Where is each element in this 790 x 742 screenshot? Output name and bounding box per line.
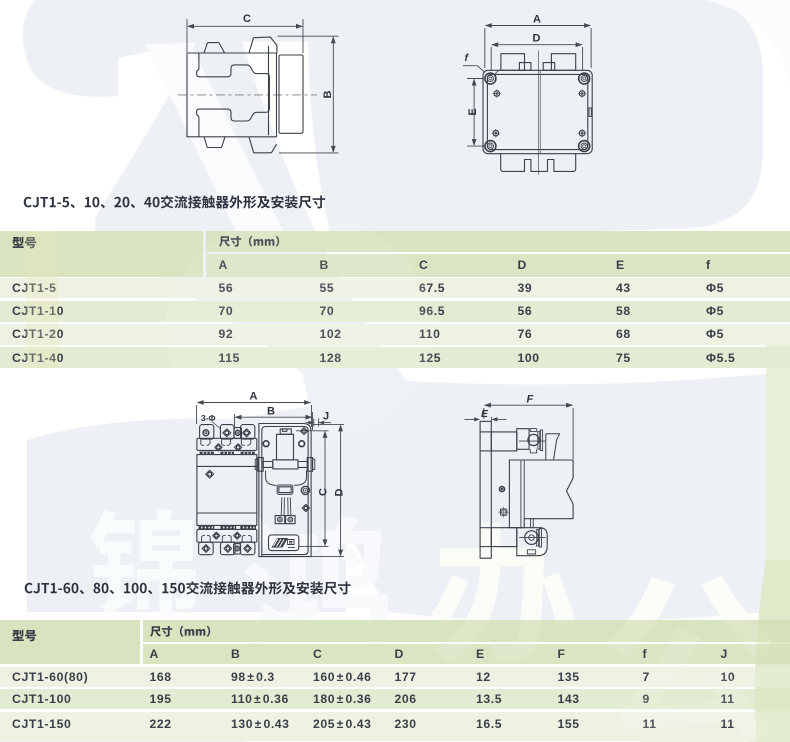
svg-text:F: F (527, 393, 534, 405)
svg-text:C: C (243, 13, 251, 25)
svg-text:f: f (465, 52, 470, 64)
svg-text:D: D (334, 488, 346, 496)
svg-text:E: E (467, 108, 479, 115)
svg-text:A: A (533, 14, 541, 26)
svg-text:B: B (322, 90, 334, 98)
svg-text:C: C (318, 488, 330, 496)
svg-text:A: A (250, 391, 258, 403)
svg-text:3-Φ: 3-Φ (201, 413, 216, 423)
svg-text:E: E (481, 408, 489, 420)
svg-text:B: B (267, 406, 275, 418)
svg-text:D: D (533, 33, 541, 45)
